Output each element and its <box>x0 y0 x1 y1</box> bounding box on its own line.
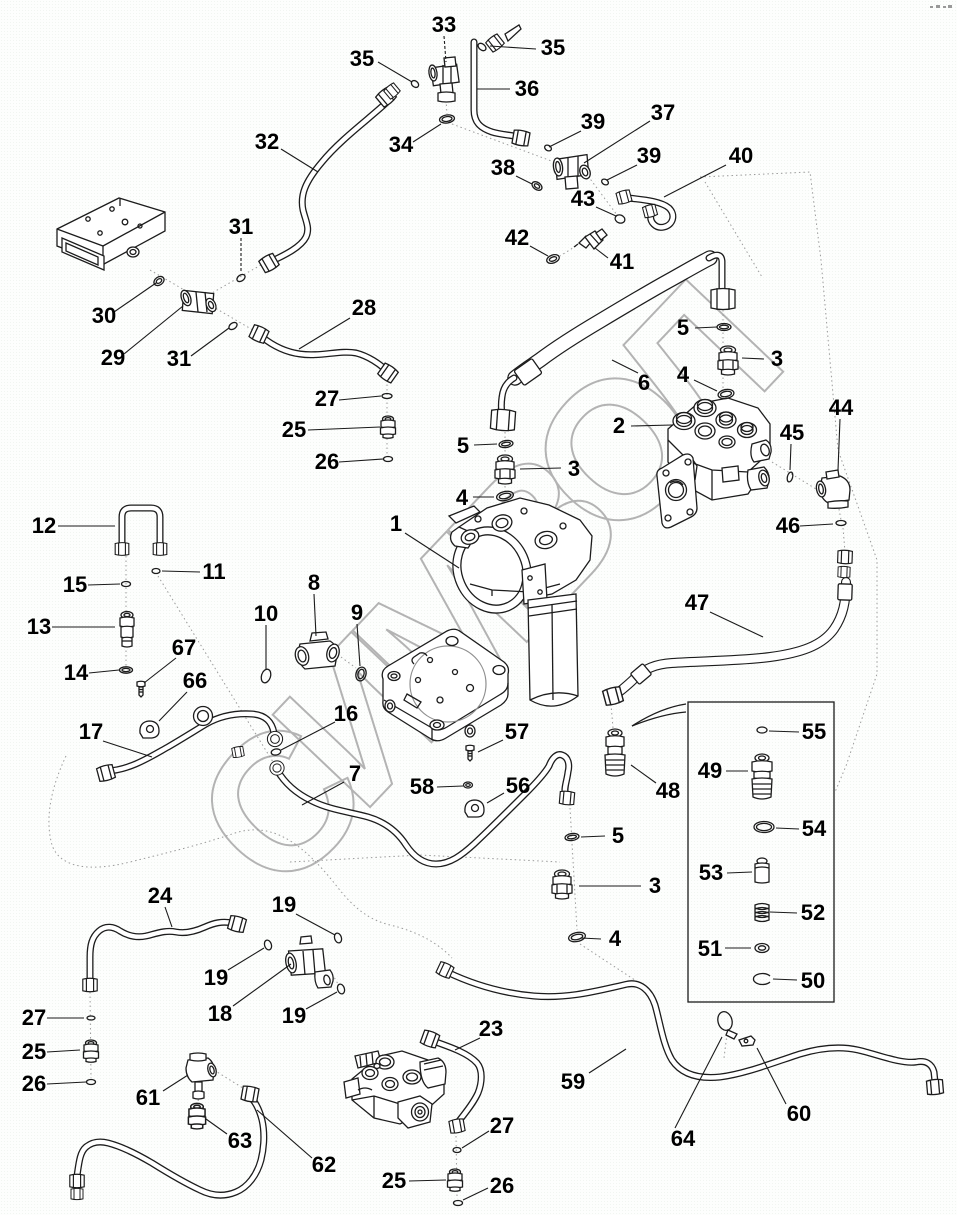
svg-text:52: 52 <box>801 900 825 925</box>
svg-text:60: 60 <box>787 1101 811 1126</box>
svg-text:5: 5 <box>457 433 469 458</box>
svg-text:67: 67 <box>172 635 196 660</box>
svg-text:19: 19 <box>272 892 296 917</box>
svg-text:27: 27 <box>22 1005 46 1030</box>
svg-text:35: 35 <box>350 46 374 71</box>
svg-text:8: 8 <box>308 570 320 595</box>
svg-text:4: 4 <box>677 362 690 387</box>
svg-text:25: 25 <box>22 1039 46 1064</box>
svg-text:12: 12 <box>32 513 56 538</box>
svg-text:62: 62 <box>312 1152 336 1177</box>
svg-text:14: 14 <box>64 660 89 685</box>
svg-text:37: 37 <box>651 100 675 125</box>
svg-text:27: 27 <box>315 386 339 411</box>
svg-text:7: 7 <box>349 761 361 786</box>
svg-text:46: 46 <box>776 513 800 538</box>
svg-text:9: 9 <box>351 600 363 625</box>
svg-text:24: 24 <box>148 883 173 908</box>
svg-text:25: 25 <box>282 417 306 442</box>
svg-text:29: 29 <box>101 345 125 370</box>
svg-text:23: 23 <box>479 1016 503 1041</box>
svg-text:56: 56 <box>506 773 530 798</box>
svg-text:25: 25 <box>382 1168 406 1193</box>
svg-text:61: 61 <box>136 1085 160 1110</box>
svg-text:49: 49 <box>698 758 722 783</box>
svg-text:11: 11 <box>202 559 225 584</box>
svg-text:27: 27 <box>490 1113 514 1138</box>
svg-text:2: 2 <box>613 413 625 438</box>
svg-text:38: 38 <box>491 155 515 180</box>
svg-text:3: 3 <box>568 456 580 481</box>
svg-text:47: 47 <box>685 590 709 615</box>
svg-text:54: 54 <box>802 816 827 841</box>
svg-text:4: 4 <box>456 485 469 510</box>
svg-text:48: 48 <box>656 778 680 803</box>
svg-text:59: 59 <box>561 1069 585 1094</box>
svg-text:45: 45 <box>780 420 804 445</box>
svg-text:39: 39 <box>581 109 605 134</box>
svg-text:19: 19 <box>204 965 228 990</box>
svg-text:32: 32 <box>255 129 279 154</box>
svg-text:53: 53 <box>699 860 723 885</box>
svg-text:5: 5 <box>612 823 624 848</box>
svg-text:15: 15 <box>63 572 87 597</box>
svg-text:16: 16 <box>334 701 358 726</box>
svg-text:5: 5 <box>677 315 689 340</box>
svg-text:51: 51 <box>698 936 722 961</box>
svg-text:26: 26 <box>315 449 339 474</box>
svg-text:39: 39 <box>637 143 661 168</box>
svg-text:26: 26 <box>490 1173 514 1198</box>
svg-text:42: 42 <box>505 225 529 250</box>
svg-text:35: 35 <box>541 35 565 60</box>
svg-text:34: 34 <box>389 132 414 157</box>
svg-text:58: 58 <box>410 774 434 799</box>
svg-text:33: 33 <box>432 12 456 37</box>
svg-text:57: 57 <box>505 719 529 744</box>
svg-text:26: 26 <box>22 1071 46 1096</box>
svg-text:40: 40 <box>729 143 753 168</box>
svg-text:66: 66 <box>183 668 207 693</box>
svg-text:17: 17 <box>79 719 103 744</box>
svg-text:36: 36 <box>515 76 539 101</box>
svg-text:13: 13 <box>27 614 51 639</box>
svg-text:43: 43 <box>571 186 595 211</box>
svg-text:31: 31 <box>229 214 253 239</box>
svg-text:41: 41 <box>610 249 634 274</box>
svg-text:64: 64 <box>671 1126 696 1151</box>
svg-text:6: 6 <box>638 370 650 395</box>
svg-text:28: 28 <box>352 295 376 320</box>
svg-text:31: 31 <box>167 346 191 371</box>
svg-text:55: 55 <box>802 719 826 744</box>
svg-text:3: 3 <box>771 346 783 371</box>
svg-text:50: 50 <box>801 968 825 993</box>
svg-text:19: 19 <box>282 1003 306 1028</box>
svg-text:3: 3 <box>649 873 661 898</box>
svg-text:4: 4 <box>609 926 622 951</box>
svg-text:10: 10 <box>254 601 278 626</box>
svg-text:63: 63 <box>228 1128 252 1153</box>
svg-text:18: 18 <box>208 1001 232 1026</box>
svg-text:44: 44 <box>829 395 854 420</box>
svg-text:30: 30 <box>92 303 116 328</box>
svg-text:1: 1 <box>390 511 402 536</box>
